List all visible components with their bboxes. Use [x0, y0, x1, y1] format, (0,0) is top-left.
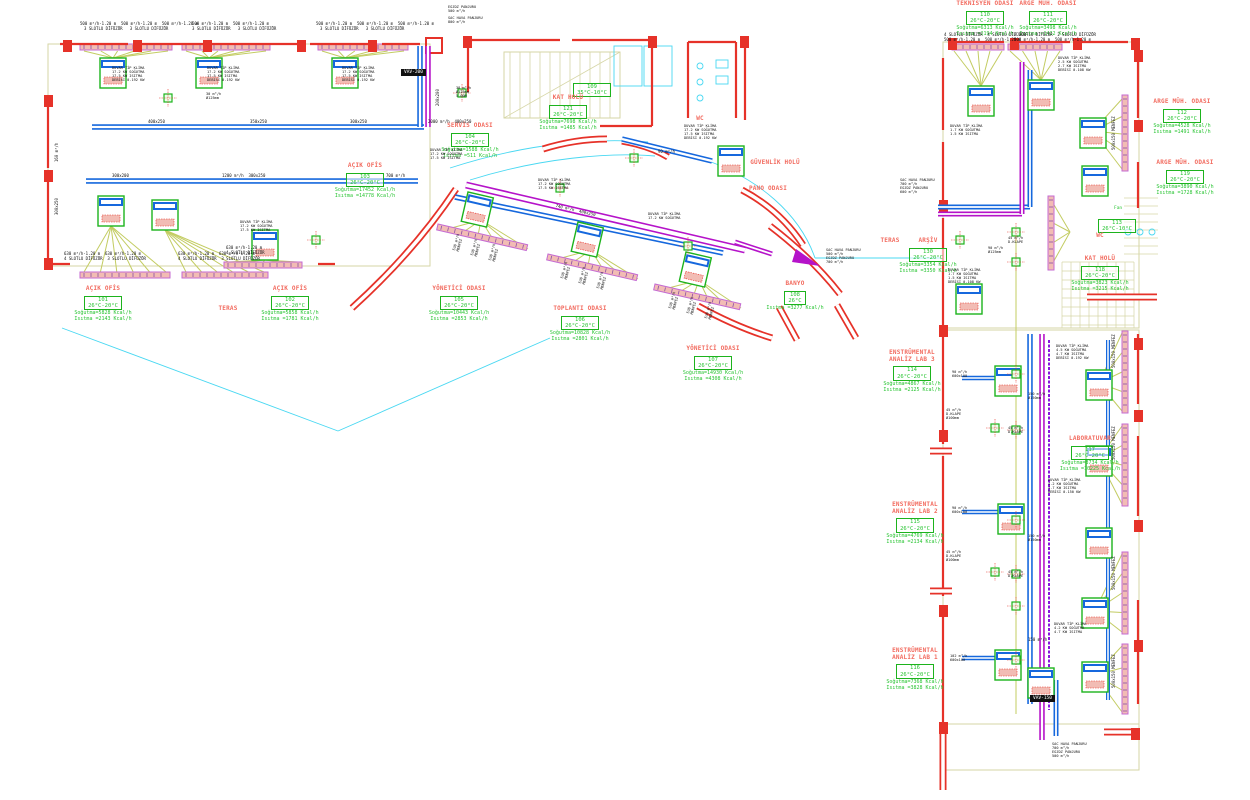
annotation-text: SAC HAVA PANJURU 500 m³/h EGZOZ PANJURU …	[826, 248, 861, 265]
room-name: ARGE MÜH. ODASI	[1142, 160, 1228, 167]
room-heating-value: Isıtma =1491 Kcal/h	[1139, 130, 1225, 136]
room-number-box: 118 26°C-20°C	[1081, 266, 1119, 281]
annotation-text: 300x250	[350, 120, 367, 125]
annotation-text: 90 m³/h	[658, 150, 675, 155]
annotation-text: 102 m³/h 600x100	[950, 654, 967, 662]
annotation-text: 530 m³/h MENFEZ	[560, 261, 572, 280]
room-name: BANYO	[752, 281, 838, 288]
room-label: TERAS	[185, 306, 271, 313]
annotation-text: 500x150 MENFEZ	[1112, 556, 1117, 590]
annotation-text: 45 m³/h D.KLAPE Ø100mm	[946, 408, 961, 420]
annotation-text: 200x200	[436, 89, 441, 106]
room-number-box: 110 26°C-20°C	[966, 11, 1004, 26]
annotation-text: EGZOZ PANJURU 500 m³/h	[448, 5, 476, 13]
annotation-text: 530 m³/h MENFEZ	[686, 296, 698, 315]
annotation-text: 500x150 MENFEZ	[1112, 334, 1117, 368]
annotation-text: 2000 m³/h 400x250	[428, 120, 471, 125]
room-heating-value: Isıtma =2125 Kcal/h	[869, 388, 955, 394]
annotation-text: 530 m³/h MENFEZ	[596, 271, 608, 290]
annotation-text: 45 m³/h D.KLAPE	[1008, 426, 1023, 434]
room-name: ENSTRÜMENTAL ANALİZ LAB 3	[869, 350, 955, 364]
annotation-text: DUVAR TİP KLİMA 1.7 KW SOĞUTMA 1.5 KW IS…	[950, 124, 982, 136]
room-label: 113 26°C-10°C	[1074, 216, 1160, 234]
room-number-box: 115 26°C-20°C	[896, 518, 934, 533]
annotation-text: 700 m³/h	[386, 174, 405, 179]
annotation-text: 4 SLOTLU DİFÜZÖR 3 SLOTLU DİFÜZÖR	[178, 257, 260, 262]
room-label: PANO ODASI	[725, 186, 811, 193]
room-name: KAT HOLÜ	[525, 95, 611, 102]
annotation-text: DUVAR TİP KLİMA 17.2 KW SOĞUTMA 17.5 KW …	[112, 66, 144, 83]
annotation-text: 150 m³/h	[1028, 638, 1047, 643]
annotation-text: 530 m³/h MENFEZ	[578, 266, 590, 285]
room-heating-value: Isıtma =1728 Kcal/h	[1142, 191, 1228, 197]
room-heating-value: Isıtma =2853 Kcal/h	[416, 317, 502, 323]
room-number-box: 101 26°C-20°C	[84, 296, 122, 311]
room-number-box: 111 26°C-20°C	[1029, 11, 1067, 26]
annotation-text: Fan	[1114, 206, 1122, 211]
annotation-text: SAC HAVA PANJURU 700 m³/h EGZOZ PANJURU …	[900, 178, 935, 195]
room-name: YÖNETİCİ ODASI	[670, 346, 756, 353]
room-number-box: 114 26°C-20°C	[893, 366, 931, 381]
annotation-text: SAC HAVA PANJURU 800 m³/h	[448, 16, 483, 24]
annotation-text: DUVAR TİP KLİMA 17.2 KW SOĞUTMA 17.5 KW …	[240, 220, 272, 232]
room-label: KAT HOLÜ118 26°C-20°CSoğutma=3823 Kcal/h…	[1057, 256, 1143, 293]
annotation-text: DUVAR TİP KLİMA 17.2 KW SOĞUTMA 17.5 KW …	[684, 124, 716, 141]
room-name: ARGE MÜH. ODASI	[1139, 99, 1225, 106]
annotation-text: 4 SLOTLU DİFÜZÖR 3 SLOTLU DİFÜZÖR	[64, 257, 146, 262]
annotation-text: 150 m³/h Ø150mm	[1028, 534, 1045, 542]
annotation-text: DUVAR TİP KLİMA 17.2 KW SOĞUTMA	[648, 212, 680, 220]
annotation-text: 300x250	[55, 198, 60, 215]
room-label: AÇIK OFİS101 26°C-20°CSoğutma=5828 Kcal/…	[60, 286, 146, 323]
annotation-text: DUVAR TİP KLİMA 17.2 KW SOĞUTMA 17.5 KW …	[430, 148, 462, 160]
room-label: TOPLANTI ODASI106 26°C-20°CSoğutma=10828…	[537, 306, 623, 343]
annotation-text: 530 m³/h MENFEZ	[452, 233, 464, 252]
annotation-text: 45 m³/h D.KLAPE Ø100mm	[946, 550, 961, 562]
room-heating-value: Isıtma =2801 Kcal/h	[537, 337, 623, 343]
annotation-text: 740 m³/h 400x250	[555, 204, 596, 218]
room-number-box: 117 26°C-20°C	[1071, 446, 1109, 461]
room-number-box: 116 26°C-20°C	[896, 664, 934, 679]
annotation-text: 150 m³/h Ø150mm	[1028, 392, 1045, 400]
floorplan-page: AÇIK OFİS101 26°C-20°CSoğutma=5828 Kcal/…	[0, 0, 1250, 800]
annotation-text: 90 m³/h 600x100	[952, 506, 967, 514]
room-label: GÜVENLİK HOLÜ	[732, 160, 818, 167]
room-label: ARGE MÜH. ODASI112 26°C-20°CSoğutma=4528…	[1139, 99, 1225, 136]
room-label: WC	[1057, 233, 1143, 240]
room-name: AÇIK OFİS	[322, 163, 408, 170]
room-number-box: 119 26°C-20°C	[1166, 170, 1204, 185]
room-label: ENSTRÜMENTAL ANALİZ LAB 1116 26°C-20°CSo…	[872, 648, 958, 692]
annotation-text: 300x200	[112, 174, 129, 179]
room-name: AÇIK OFİS	[60, 286, 146, 293]
annotation-text: DUVAR TİP KLİMA 17.2 KW SOĞUTMA 17.5 KW …	[538, 178, 570, 190]
room-heating-value: Isıtma =3277 Kcal/h	[752, 306, 838, 312]
room-heating-value: Isıtma =2143 Kcal/h	[60, 317, 146, 323]
room-label: AÇIK OFİS102 26°C-20°CSoğutma=5858 Kcal/…	[247, 286, 333, 323]
room-heating-value: Isıtma =3215 Kcal/h	[1057, 287, 1143, 293]
room-number-box: 102 26°C-20°C	[271, 296, 309, 311]
annotation-text: SAC HAVA PANJURU 700 m³/h EGZOZ PANJURU …	[1052, 742, 1087, 759]
annotation-text: DUVAR TİP KLİMA 2.5 KW SOĞUTMA 2.7 KW IS…	[1058, 56, 1090, 73]
room-label: YÖNETİCİ ODASI107 26°C-20°CSoğutma=14930…	[670, 346, 756, 383]
room-heating-value: Isıtma =3828 Kcal/h	[872, 686, 958, 692]
room-label: BANYO108 26°CIsıtma =3277 Kcal/h	[752, 281, 838, 312]
labels-layer: AÇIK OFİS101 26°C-20°CSoğutma=5828 Kcal/…	[0, 0, 1250, 800]
room-name: ENSTRÜMENTAL ANALİZ LAB 1	[872, 648, 958, 662]
annotation-text: 4 SLOTLU DİFÜZÖR	[226, 251, 265, 256]
room-name: GÜVENLİK HOLÜ	[732, 160, 818, 167]
annotation-text: 3 SLOTLU DİFÜZÖR 3 SLOTLU DİFÜZÖR	[320, 27, 404, 32]
room-number-box: 104 26°C-20°C	[451, 133, 489, 148]
annotation-text: DUVAR TİP KLİMA 4.2 KW SOĞUTMA 4.7 KW IS…	[1054, 622, 1086, 634]
room-label: KAT HOLÜ121 26°C-20°CSoğutma=7698 Kcal/h…	[525, 95, 611, 132]
room-name: YÖNETİCİ ODASI	[416, 286, 502, 293]
room-name: TOPLANTI ODASI	[537, 306, 623, 313]
annotation-text: DUVAR TİP KLİMA 4.5 KW SOĞUTMA 4.7 KW IS…	[1056, 344, 1088, 361]
annotation-text: 530 m³/h MENFEZ	[704, 301, 716, 320]
room-number-box: 130 26°C-20°C	[909, 248, 947, 263]
room-number-box: 106 26°C-20°C	[561, 316, 599, 331]
room-number-box: 108 26°C	[784, 291, 805, 306]
room-number-box: 105 26°C-20°C	[440, 296, 478, 311]
annotation-text: 45 m³/h D.KLAPE	[1008, 236, 1023, 244]
room-name: TERAS	[185, 306, 271, 313]
room-name: LABORATUVAR	[1047, 436, 1133, 443]
room-name: WC	[657, 116, 743, 123]
room-label: AÇIK OFİS103 26°C-20°CSoğutma=17452 Kcal…	[322, 163, 408, 200]
room-name: ARGE MÜH. ODASI	[1005, 1, 1091, 8]
annotation-text: 500x150 MENFEZ	[1112, 654, 1117, 688]
annotation-text: 160 m³/h	[55, 143, 60, 162]
annotation-text: VAV-200	[401, 69, 426, 76]
room-label: ARGE MÜH. ODASI119 26°C-20°CSoğutma=3890…	[1142, 160, 1228, 197]
room-heating-value: Isıtma =1485 Kcal/h	[525, 126, 611, 132]
room-name: WC	[1057, 233, 1143, 240]
annotation-text: 530 m³/h MENFEZ	[488, 243, 500, 262]
annotation-text: DUVAR TİP KLİMA 17.2 KW SOĞUTMA 17.5 KW …	[342, 66, 374, 83]
annotation-text: 45 m³/h D.KLAPE	[1008, 570, 1023, 578]
room-heating-value: Isıtma =1781 Kcal/h	[247, 317, 333, 323]
room-heating-value: Isıtma =10225 Kcal/h	[1047, 467, 1133, 473]
annotation-text: 500x150 MENFEZ	[1112, 116, 1117, 150]
annotation-text: 500 m³/h-1.20 m 500 m³/h-1.20 m	[944, 38, 1021, 43]
annotation-text: 530 m³/h MENFEZ	[668, 291, 680, 310]
annotation-text: VAV-150	[1030, 695, 1055, 702]
annotation-text: 30 m³/h Ø125mm	[206, 92, 221, 100]
room-label: YÖNETİCİ ODASI105 26°C-20°CSoğutma=10443…	[416, 286, 502, 323]
room-label: ENSTRÜMENTAL ANALİZ LAB 3114 26°C-20°CSo…	[869, 350, 955, 394]
room-heating-value: Isıtma =2134 Kcal/h	[872, 540, 958, 546]
room-label: LABORATUVAR117 26°C-20°CSoğutma=3734 Kca…	[1047, 436, 1133, 473]
annotation-text: 90 m³/h 600x100	[952, 370, 967, 378]
room-heating-value: Isıtma =4308 Kcal/h	[670, 377, 756, 383]
room-label: ENSTRÜMENTAL ANALİZ LAB 2115 26°C-20°CSo…	[872, 502, 958, 546]
room-name: AÇIK OFİS	[247, 286, 333, 293]
annotation-text: 400x250	[148, 120, 165, 125]
annotation-text: DUVAR TİP KLİMA 17.2 KW SOĞUTMA 17.5 KW …	[207, 66, 239, 83]
annotation-text: DUVAR TİP KLİMA 1.7 KW SOĞUTMA 1.5 KW IS…	[948, 268, 980, 285]
annotation-text: 1200 m³/h 300x250	[222, 174, 265, 179]
annotation-text: 90 m³/h Ø125mm	[988, 246, 1003, 254]
room-label: WC	[657, 116, 743, 123]
room-name: PANO ODASI	[725, 186, 811, 193]
annotation-text: 500 m³/h-1.20 m 500 m³/h-1.20 m	[1014, 38, 1091, 43]
room-number-box: 121 26°C-20°C	[549, 105, 587, 120]
room-name: KAT HOLÜ	[1057, 256, 1143, 263]
annotation-text: 3 SLOTLU DİFÜZÖR 3 SLOTLU DİFÜZÖR	[192, 27, 276, 32]
room-number-box: 112 26°C-20°C	[1163, 109, 1201, 124]
annotation-text: 3 SLOTLU DİFÜZÖR 3 SLOTLU DİFÜZÖR	[84, 27, 168, 32]
room-name: ARŞİV	[885, 238, 971, 245]
annotation-text: 38 m³/h Ø125mm 5.00M	[456, 86, 471, 98]
annotation-text: DUVAR TİP KLİMA 4.2 KW SOĞUTMA 4.7 KW IS…	[1048, 478, 1080, 495]
annotation-text: 350x250	[250, 120, 267, 125]
annotation-text: 530 m³/h MENFEZ	[470, 238, 482, 257]
annotation-text: 500x150 MENFEZ	[1112, 426, 1117, 460]
room-number-box: 107 26°C-20°C	[694, 356, 732, 371]
room-name: ENSTRÜMENTAL ANALİZ LAB 2	[872, 502, 958, 516]
room-number-box: 103 26°C-20°C	[346, 173, 384, 188]
room-heating-value: Isıtma =14778 Kcal/h	[322, 194, 408, 200]
